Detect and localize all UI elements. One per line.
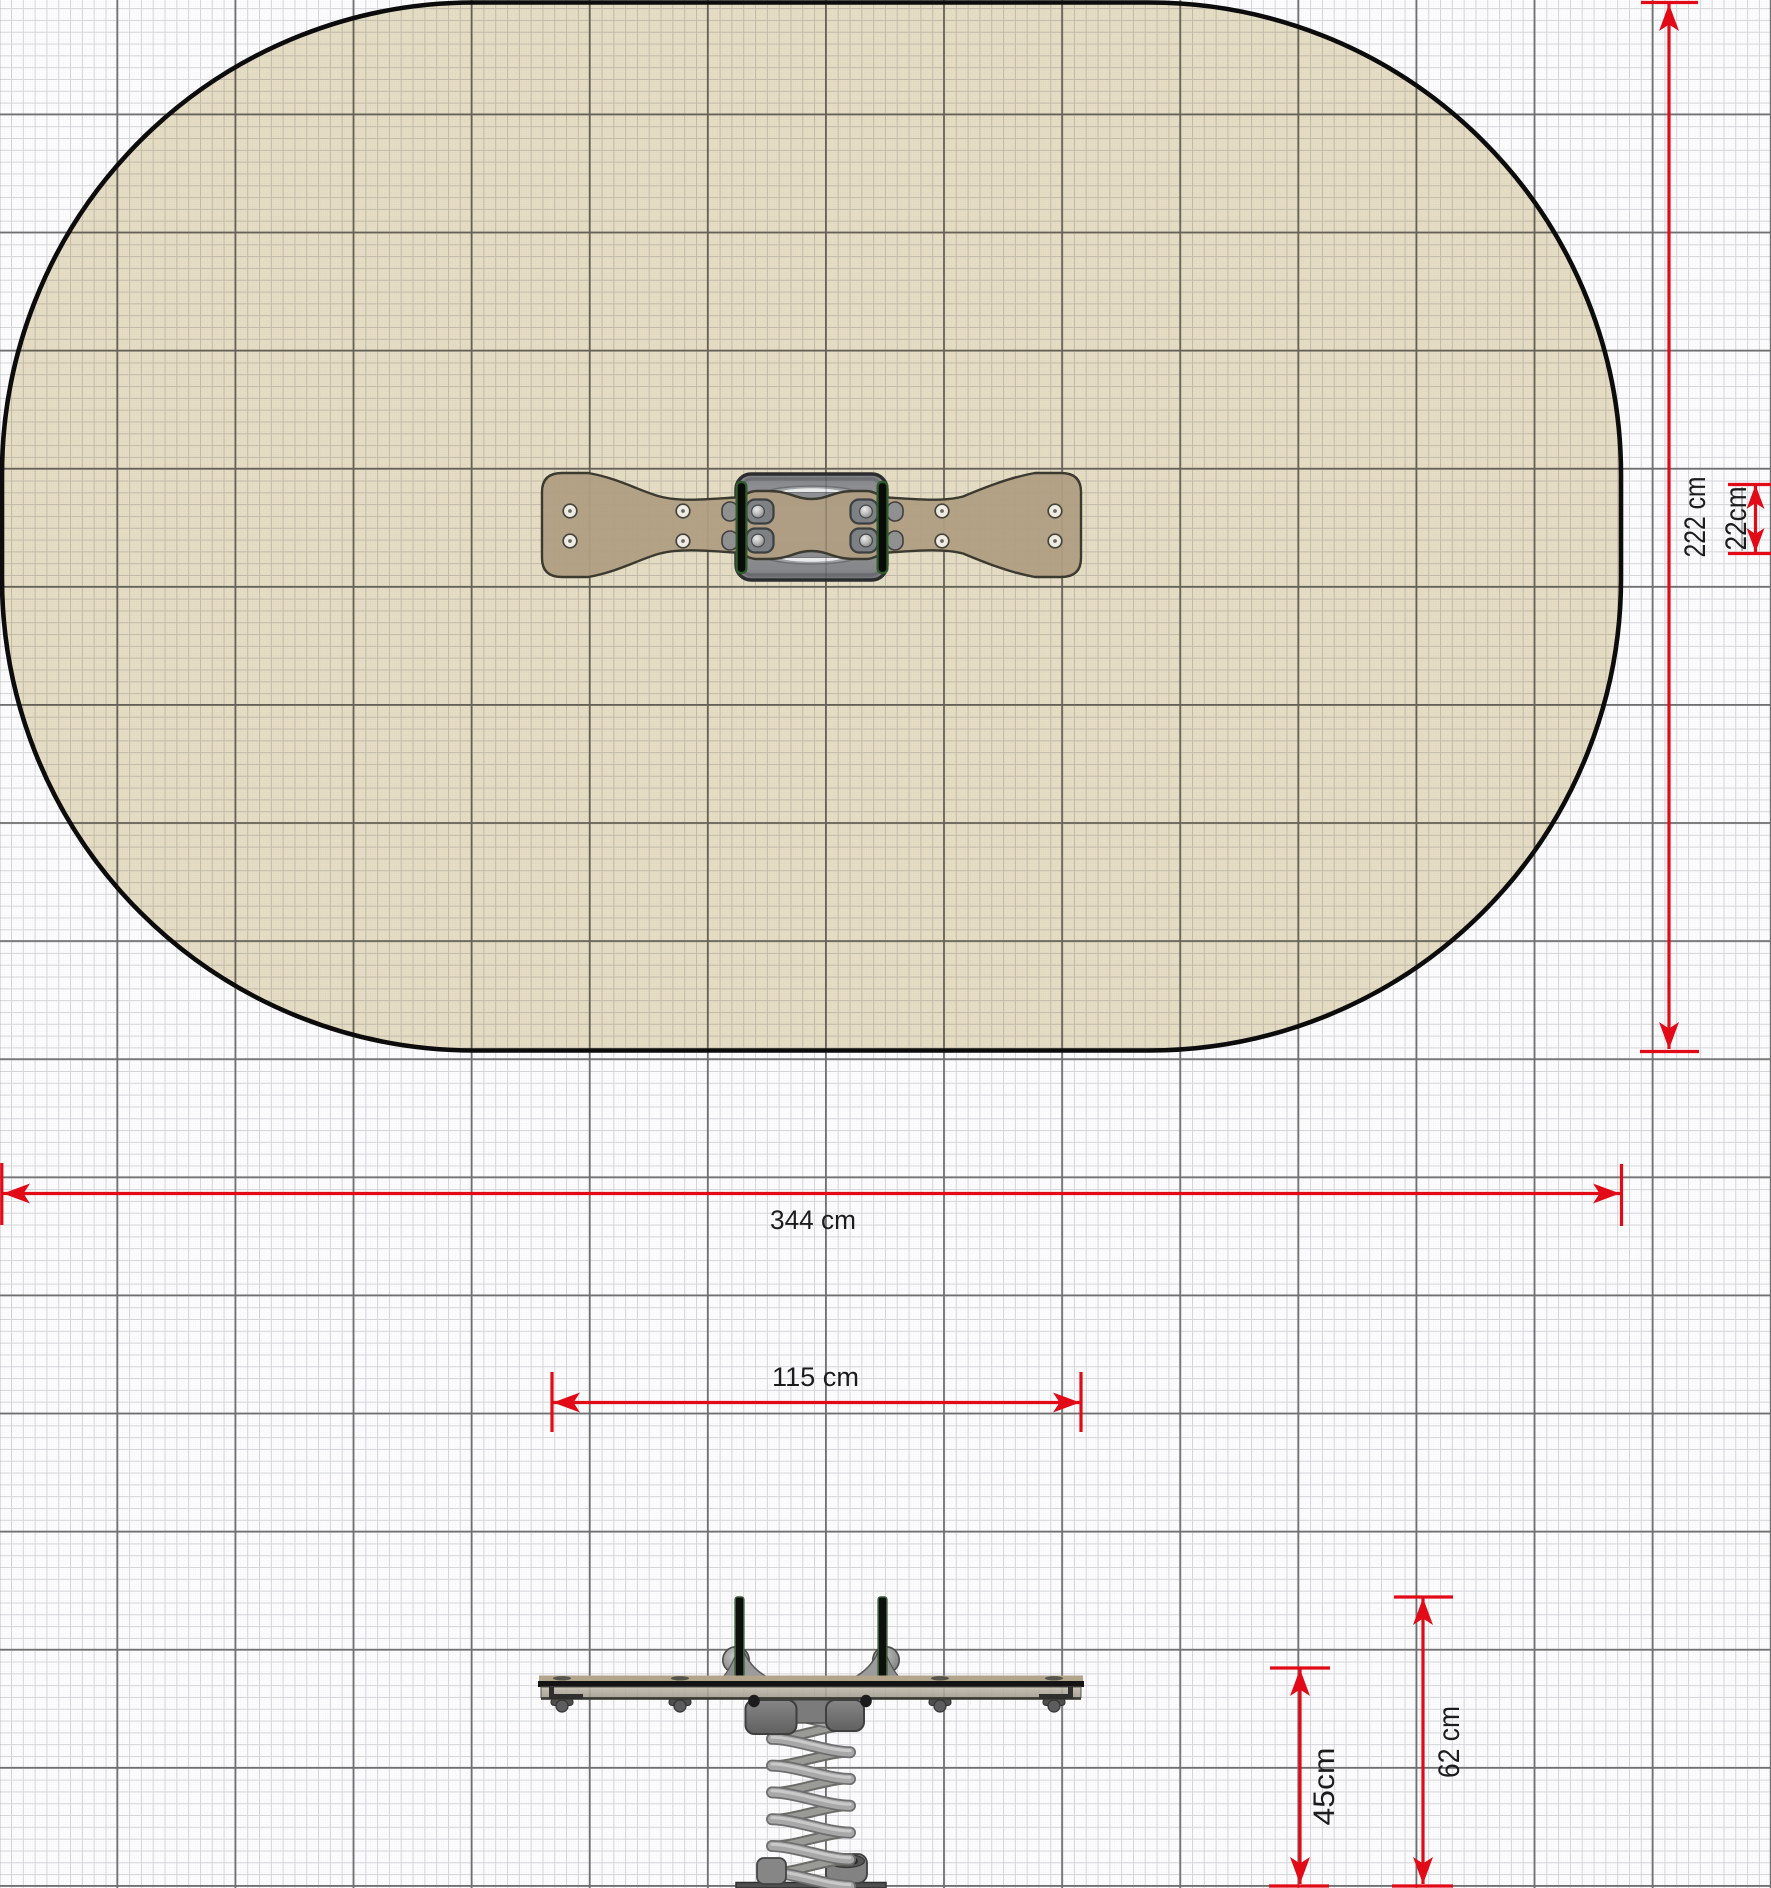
svg-text:344 cm: 344 cm [770, 1205, 856, 1235]
svg-text:22cm: 22cm [1720, 487, 1753, 551]
svg-text:45cm: 45cm [1308, 1748, 1341, 1826]
svg-text:222 cm: 222 cm [1679, 477, 1712, 558]
svg-text:62 cm: 62 cm [1433, 1706, 1466, 1778]
svg-text:115 cm: 115 cm [772, 1362, 859, 1392]
